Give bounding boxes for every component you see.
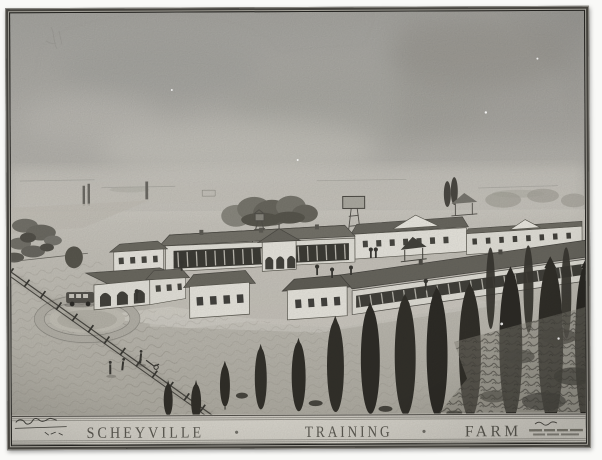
picture-frame: SCHEYVILLE ● TRAINING ● FARM [5,6,591,451]
farm-drawing: SCHEYVILLE ● TRAINING ● FARM [10,11,586,446]
drawing-area: SCHEYVILLE ● TRAINING ● FARM [10,11,586,446]
photo-artifacts [10,11,586,446]
photograph-background: SCHEYVILLE ● TRAINING ● FARM [0,0,602,460]
